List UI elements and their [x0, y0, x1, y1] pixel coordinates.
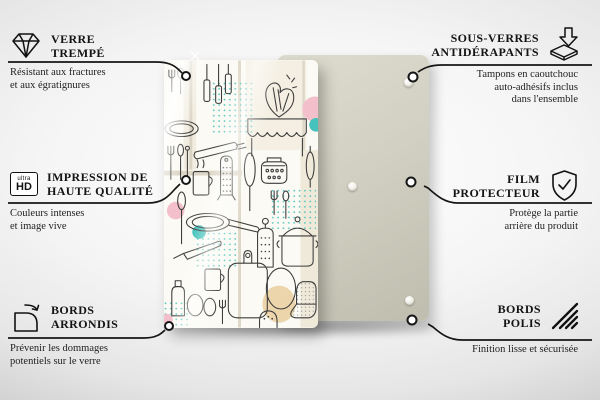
rubber-pad — [405, 296, 414, 305]
product-infographic: VERRE TREMPÉ Résistant aux fractures et … — [0, 0, 600, 400]
feature-description: Résistant aux fractures et aux égratignu… — [10, 67, 106, 92]
rubber-pads-icon — [548, 27, 580, 62]
rounded-corner-icon — [10, 301, 42, 333]
sparkle — [191, 52, 199, 60]
feature-description: Prévenir les dommages potentiels sur le … — [10, 343, 108, 368]
feature-title: SOUS-VERRES ANTIDÉRAPANTS — [431, 31, 539, 59]
feature-description: Tampons en caoutchouc auto-adhésifs incl… — [477, 69, 578, 107]
shield-check-icon — [549, 169, 580, 202]
feature-title: VERRE TREMPÉ — [51, 32, 105, 60]
feature-description: Couleurs intenses et image vive — [10, 208, 84, 233]
glass-board-front — [164, 60, 318, 328]
rubber-pad — [404, 78, 413, 87]
feature-title: BORDS POLIS — [498, 302, 541, 330]
feature-description: Finition lisse et sécurisée — [472, 344, 578, 357]
feature-title: IMPRESSION DE HAUTE QUALITÉ — [47, 170, 153, 198]
feature-description: Protège la partie arrière du produit — [505, 208, 578, 233]
feature-title: FILM PROTECTEUR — [453, 172, 540, 200]
feature-title: BORDS ARRONDIS — [51, 303, 118, 331]
hatched-edge-icon — [550, 302, 580, 330]
ultra-hd-icon: ultra HD — [10, 172, 38, 196]
kitchen-doodle-pattern — [164, 60, 318, 328]
diamond-icon — [10, 31, 42, 60]
rubber-pad — [348, 182, 357, 191]
